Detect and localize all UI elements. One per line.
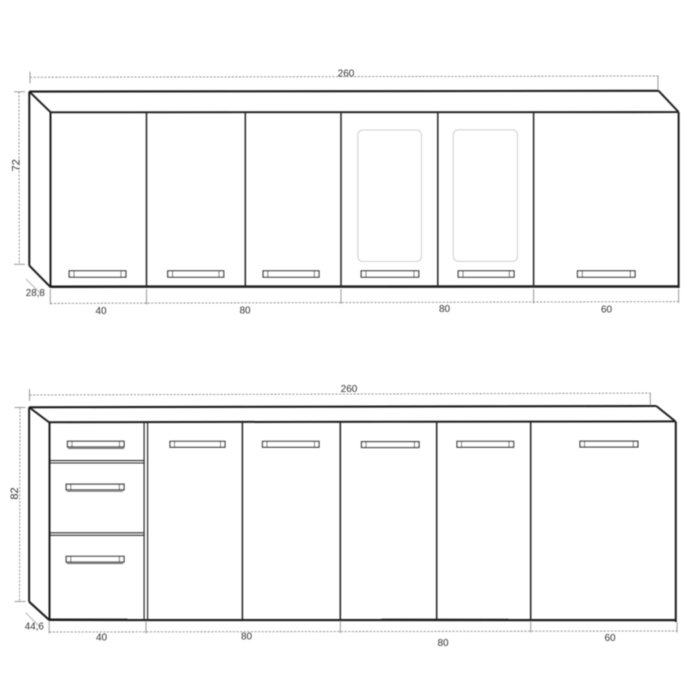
svg-text:260: 260 <box>338 69 355 80</box>
svg-text:40: 40 <box>95 306 107 317</box>
svg-text:82: 82 <box>9 487 21 499</box>
svg-text:72: 72 <box>10 159 22 171</box>
svg-text:44,6: 44,6 <box>25 622 45 633</box>
svg-text:80: 80 <box>241 632 253 643</box>
svg-text:80: 80 <box>239 305 251 316</box>
svg-text:60: 60 <box>604 633 616 644</box>
svg-text:80: 80 <box>439 304 451 315</box>
svg-text:80: 80 <box>437 638 449 649</box>
svg-text:40: 40 <box>96 633 108 644</box>
svg-text:260: 260 <box>341 384 358 395</box>
svg-text:28,8: 28,8 <box>26 288 46 299</box>
svg-text:60: 60 <box>601 305 613 316</box>
